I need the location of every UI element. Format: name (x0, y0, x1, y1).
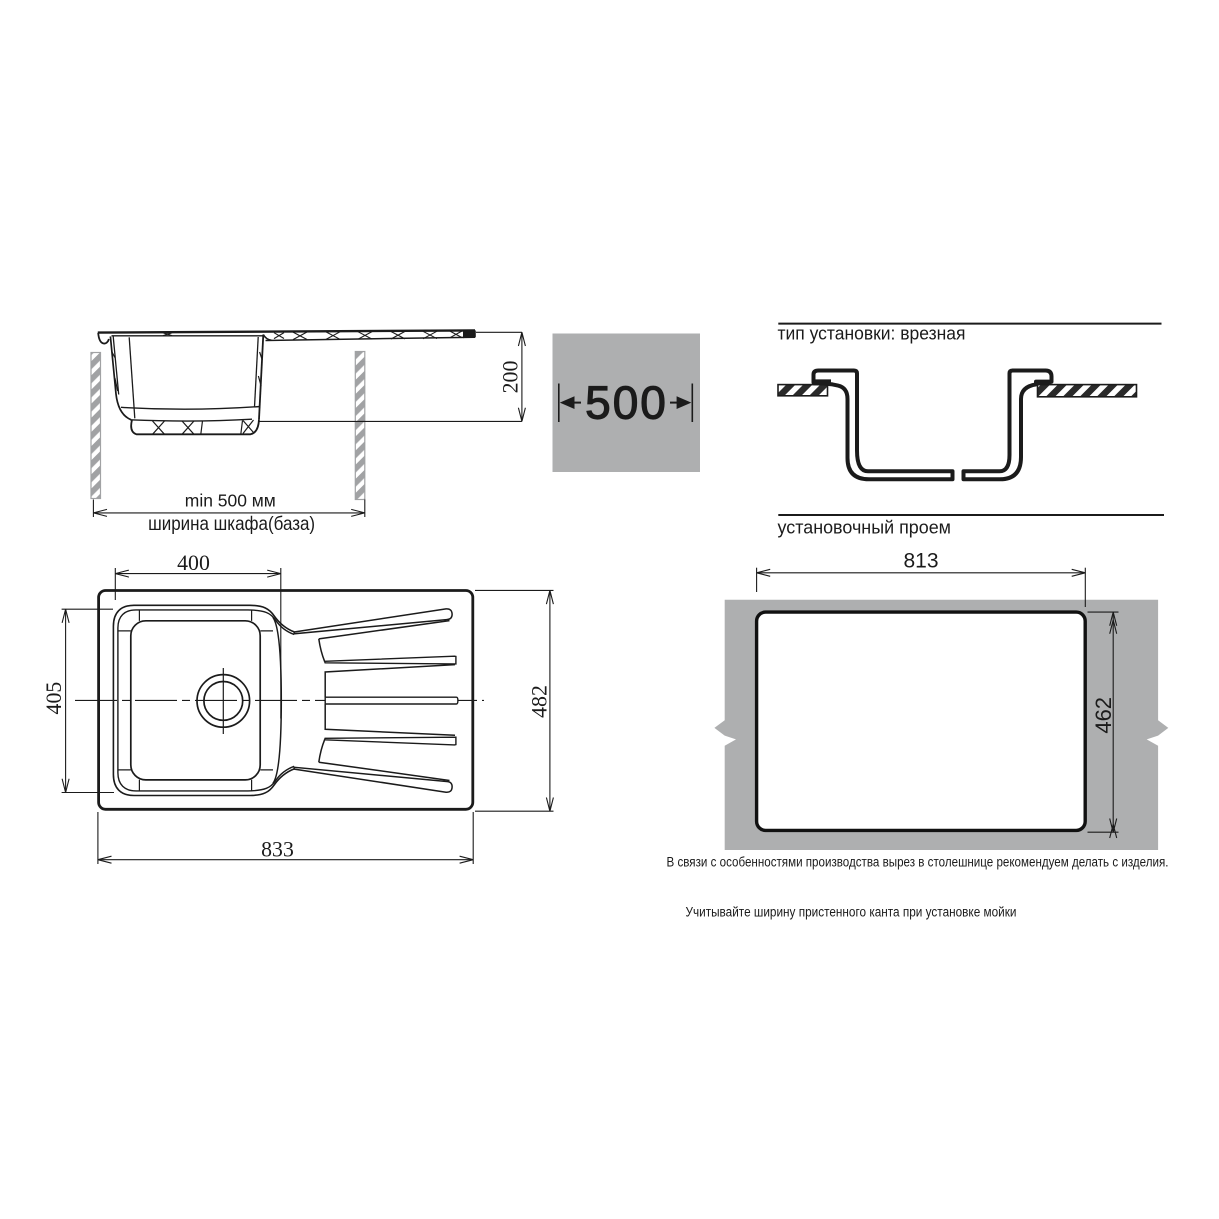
svg-text:462: 462 (1091, 697, 1116, 734)
svg-text:405: 405 (42, 682, 66, 715)
svg-text:установочный проем: установочный проем (778, 518, 952, 538)
svg-text:В связи с особенностями произв: В связи с особенностями производства выр… (667, 855, 1169, 870)
svg-text:400: 400 (177, 551, 210, 575)
svg-text:тип установки: врезная: тип установки: врезная (778, 324, 966, 344)
svg-text:Учитывайте ширину пристенного: Учитывайте ширину пристенного канта при … (686, 905, 1017, 920)
svg-text:482: 482 (527, 685, 551, 718)
svg-text:200: 200 (499, 361, 523, 394)
svg-text:813: 813 (903, 550, 938, 573)
svg-text:833: 833 (261, 837, 294, 861)
svg-text:min 500 мм: min 500 мм (185, 491, 276, 511)
svg-text:500: 500 (585, 377, 668, 429)
svg-text:ширина шкафа(база): ширина шкафа(база) (148, 513, 315, 535)
